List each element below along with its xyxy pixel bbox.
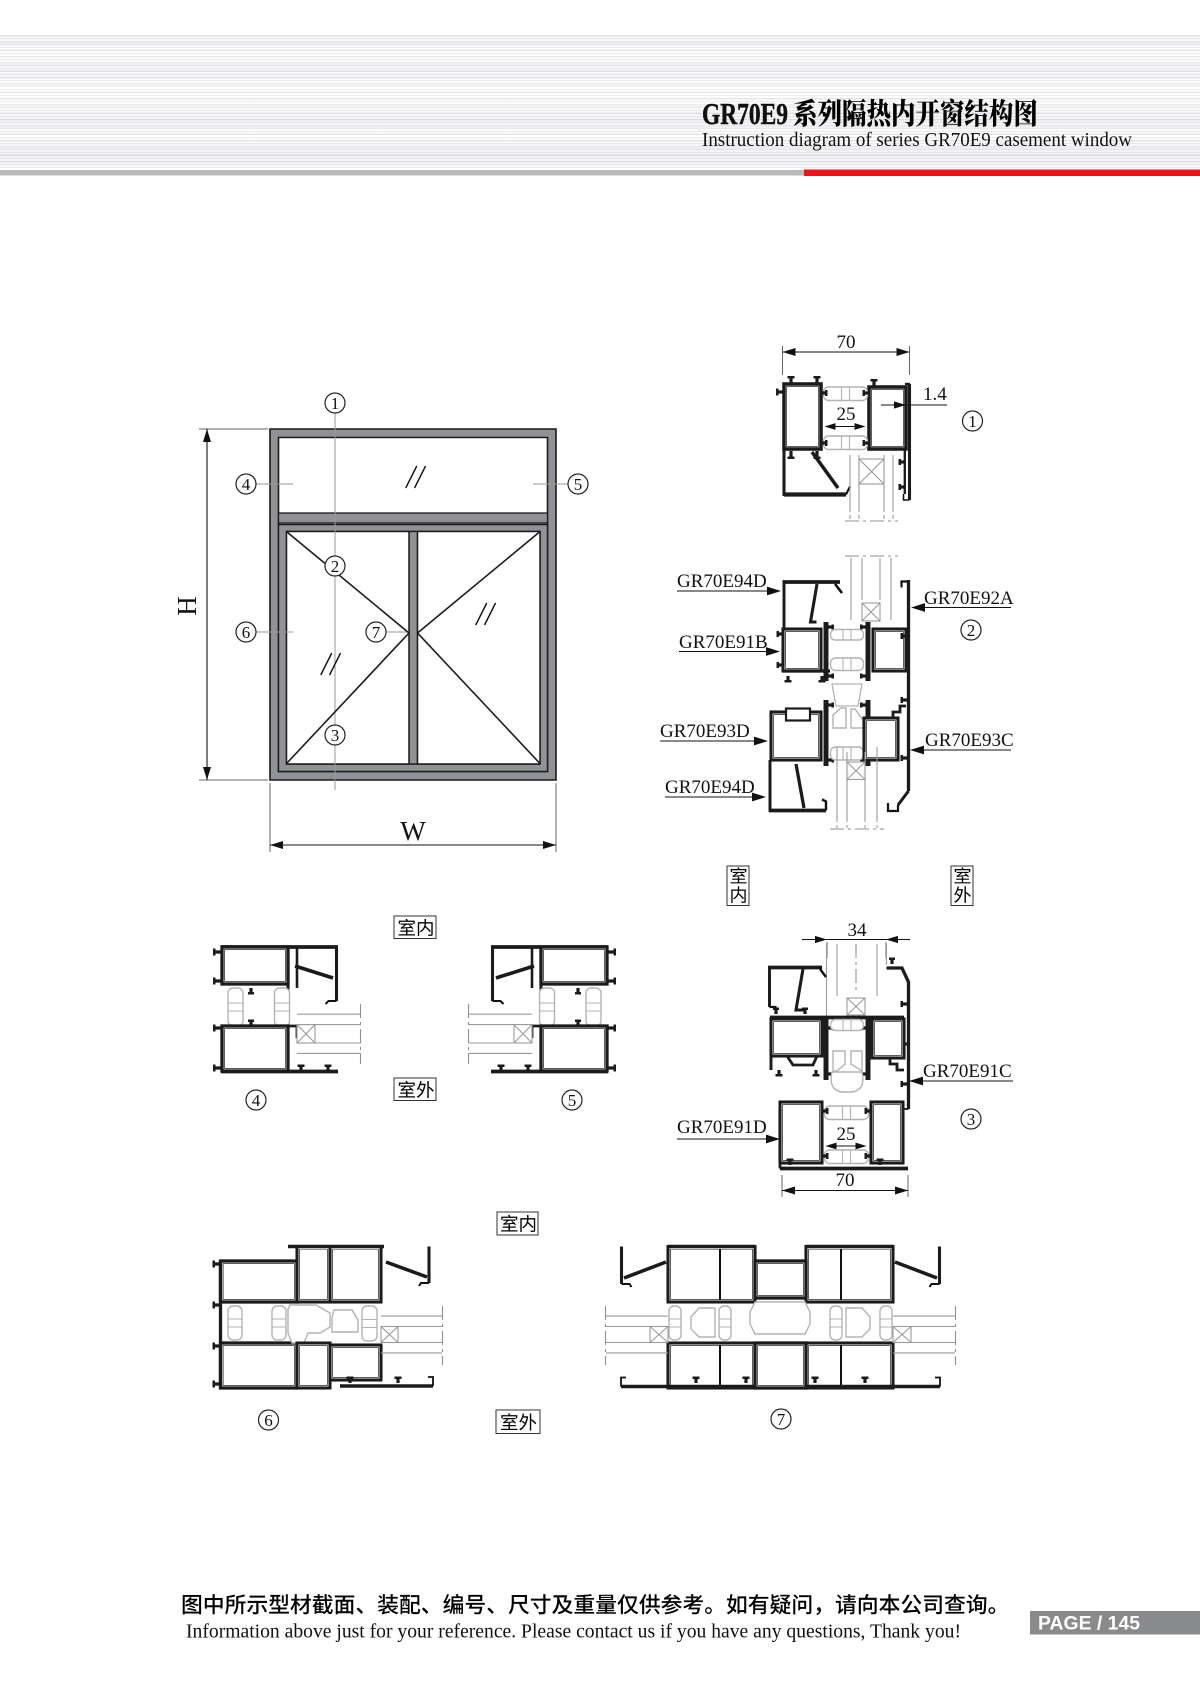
svg-text:34: 34 <box>848 920 868 941</box>
svg-text:5: 5 <box>568 1091 577 1110</box>
svg-text:3: 3 <box>967 1110 976 1129</box>
svg-text:1: 1 <box>331 394 340 413</box>
svg-text:25: 25 <box>837 1124 856 1145</box>
svg-text:1.4: 1.4 <box>923 384 947 405</box>
svg-text:H: H <box>172 596 202 616</box>
svg-text:GR70E91C: GR70E91C <box>923 1061 1012 1082</box>
svg-text:7: 7 <box>777 1410 786 1429</box>
svg-text:GR70E93C: GR70E93C <box>925 730 1014 751</box>
svg-text:GR70E9: GR70E9 <box>702 96 788 131</box>
svg-text:1: 1 <box>968 412 977 431</box>
svg-text:6: 6 <box>264 1411 273 1430</box>
svg-text:4: 4 <box>242 475 251 494</box>
svg-text:GR70E93D: GR70E93D <box>660 721 750 742</box>
svg-text:2: 2 <box>967 621 976 640</box>
svg-text:GR70E94D: GR70E94D <box>665 777 755 798</box>
svg-text:Instruction diagram of series: Instruction diagram of series GR70E9 cas… <box>702 129 1132 151</box>
svg-text:GR70E91B: GR70E91B <box>679 632 768 653</box>
svg-text:2: 2 <box>331 557 340 576</box>
svg-text:GR70E91D: GR70E91D <box>677 1117 767 1138</box>
svg-text:70: 70 <box>837 332 856 353</box>
svg-text:70: 70 <box>836 1170 855 1191</box>
svg-text:7: 7 <box>372 623 381 642</box>
svg-text:W: W <box>400 816 426 846</box>
svg-text:25: 25 <box>837 404 856 425</box>
svg-text:4: 4 <box>252 1091 261 1110</box>
svg-text:3: 3 <box>331 726 340 745</box>
svg-text:GR70E94D: GR70E94D <box>677 571 767 592</box>
svg-text:PAGE / 145: PAGE / 145 <box>1038 1614 1140 1635</box>
svg-text:GR70E92A: GR70E92A <box>924 588 1014 609</box>
svg-text:6: 6 <box>242 623 251 642</box>
svg-text:5: 5 <box>574 475 583 494</box>
svg-text:Information above just for you: Information above just for your referenc… <box>186 1621 961 1643</box>
